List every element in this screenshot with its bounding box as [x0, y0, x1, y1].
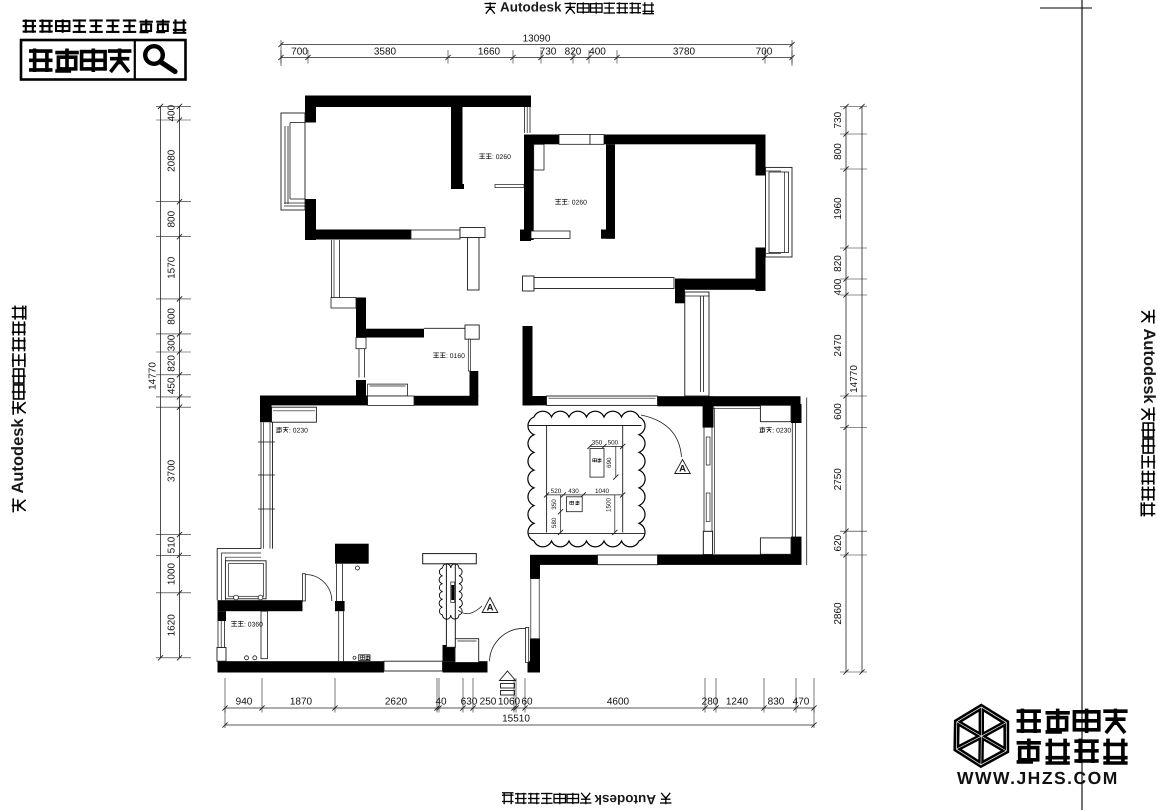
svg-text:1000: 1000	[167, 562, 178, 585]
svg-text:830: 830	[768, 697, 785, 708]
svg-text:630: 630	[461, 697, 478, 708]
svg-text:: 0230: : 0230	[772, 428, 791, 435]
svg-text:470: 470	[793, 697, 810, 708]
svg-text:3780: 3780	[673, 47, 696, 58]
svg-text:1060: 1060	[498, 697, 521, 708]
svg-text:820: 820	[833, 255, 844, 272]
svg-text:1660: 1660	[478, 47, 501, 58]
svg-text:15510: 15510	[502, 714, 530, 725]
svg-text:14770: 14770	[849, 365, 860, 393]
svg-text:1570: 1570	[167, 256, 178, 279]
svg-text:250: 250	[480, 697, 497, 708]
svg-text:800: 800	[833, 143, 844, 160]
svg-text:2750: 2750	[833, 468, 844, 491]
svg-text:: 0260: : 0260	[492, 154, 511, 161]
svg-text:4600: 4600	[607, 697, 630, 708]
svg-text:13090: 13090	[523, 34, 551, 45]
svg-text:350: 350	[551, 499, 558, 510]
svg-text:1620: 1620	[167, 614, 178, 637]
svg-text:40: 40	[435, 697, 447, 708]
svg-text:1040: 1040	[595, 488, 610, 495]
svg-text:2470: 2470	[833, 334, 844, 357]
svg-text:730: 730	[540, 47, 557, 58]
svg-text:: 0160: : 0160	[446, 353, 465, 360]
svg-text:1960: 1960	[833, 197, 844, 220]
svg-text:2620: 2620	[385, 697, 408, 708]
svg-text:3700: 3700	[167, 459, 178, 482]
svg-text:940: 940	[236, 697, 253, 708]
svg-text:600: 600	[833, 403, 844, 420]
svg-text:430: 430	[568, 488, 579, 495]
svg-text:WWW.JHZS.COM: WWW.JHZS.COM	[957, 768, 1119, 788]
svg-text:A: A	[679, 464, 686, 475]
svg-text:14770: 14770	[148, 362, 159, 390]
svg-text:820: 820	[565, 47, 582, 58]
svg-text:1500: 1500	[606, 498, 613, 513]
svg-text:A: A	[487, 603, 494, 614]
svg-text:580: 580	[551, 517, 558, 528]
svg-text:500: 500	[608, 440, 619, 447]
svg-text:3580: 3580	[374, 47, 397, 58]
svg-text:620: 620	[833, 534, 844, 551]
svg-text:: 0260: : 0260	[568, 200, 587, 207]
svg-text:400: 400	[167, 104, 178, 121]
svg-text:60: 60	[521, 697, 533, 708]
svg-text:280: 280	[702, 697, 719, 708]
svg-text:730: 730	[833, 111, 844, 128]
svg-text:2080: 2080	[167, 149, 178, 172]
svg-text:300: 300	[167, 334, 178, 351]
svg-text:: 0360: : 0360	[244, 622, 263, 629]
svg-text:: 0230: : 0230	[289, 428, 308, 435]
svg-text:400: 400	[589, 47, 606, 58]
svg-text:450: 450	[167, 377, 178, 394]
svg-text:800: 800	[167, 308, 178, 325]
svg-text:510: 510	[167, 536, 178, 553]
svg-text:520: 520	[551, 488, 562, 495]
svg-text:400: 400	[833, 278, 844, 295]
svg-text:350: 350	[592, 440, 603, 447]
svg-text:700: 700	[291, 47, 308, 58]
svg-text:820: 820	[167, 355, 178, 372]
svg-text:1240: 1240	[726, 697, 749, 708]
svg-text:700: 700	[756, 47, 773, 58]
svg-text:800: 800	[167, 210, 178, 227]
svg-text:690: 690	[606, 457, 613, 468]
svg-text:1870: 1870	[290, 697, 313, 708]
svg-text:2860: 2860	[833, 602, 844, 625]
